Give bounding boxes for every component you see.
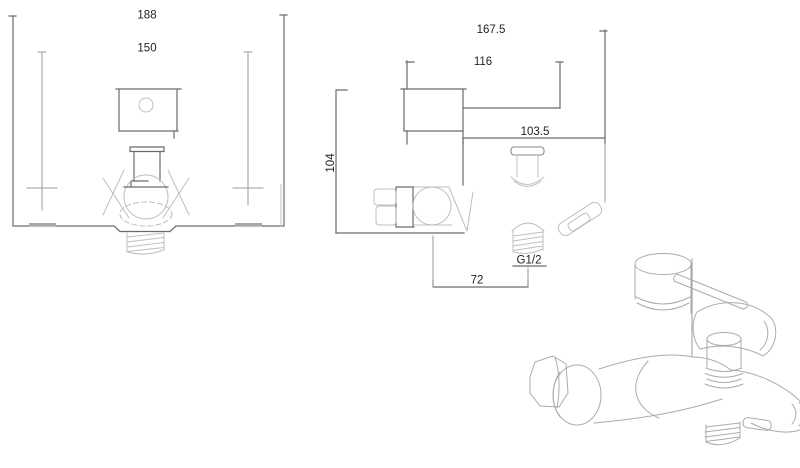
persp-diverter-knob [705, 333, 743, 389]
dim-label-overall-width: 188 [137, 10, 156, 22]
side-body-circle [413, 187, 451, 225]
side-diverter-knob [511, 147, 544, 187]
perspective-view [530, 254, 800, 445]
side-wall-union-lower [376, 206, 396, 225]
drawing-canvas: 188 150 167.5 116 103.5 104 G1/2 72 [0, 0, 800, 468]
side-dimension-lines [336, 30, 607, 287]
side-shower-outlet [512, 223, 544, 253]
dim-label-body-height: 104 [325, 153, 337, 173]
side-tub-spout [556, 200, 604, 238]
side-view [336, 30, 607, 287]
dim-label-inlet-center-distance: 150 [137, 43, 156, 55]
persp-body-barrel [530, 355, 731, 425]
front-spout-mouth [120, 202, 172, 226]
faucet-technical-drawing: 188 150 167.5 116 103.5 104 G1/2 72 [0, 0, 800, 468]
dim-label-handle-reach: 116 [474, 56, 492, 68]
dim-label-overall-depth: 167.5 [477, 24, 506, 36]
side-body-outline [336, 89, 560, 233]
persp-wall-cylinder [693, 303, 776, 356]
front-body-outline [103, 89, 189, 232]
thread-size-label: G1/2 [517, 255, 542, 267]
persp-lever-handle [674, 274, 748, 309]
dim-label-spout-reach: 103.5 [521, 126, 550, 138]
front-thread-symbol [127, 233, 164, 254]
persp-shower-outlet [705, 422, 740, 445]
side-wall-union-upper [374, 189, 396, 205]
dim-label-outlet-offset: 72 [471, 275, 484, 287]
persp-top-cylinder [635, 254, 692, 358]
front-screw-hole [139, 98, 153, 112]
